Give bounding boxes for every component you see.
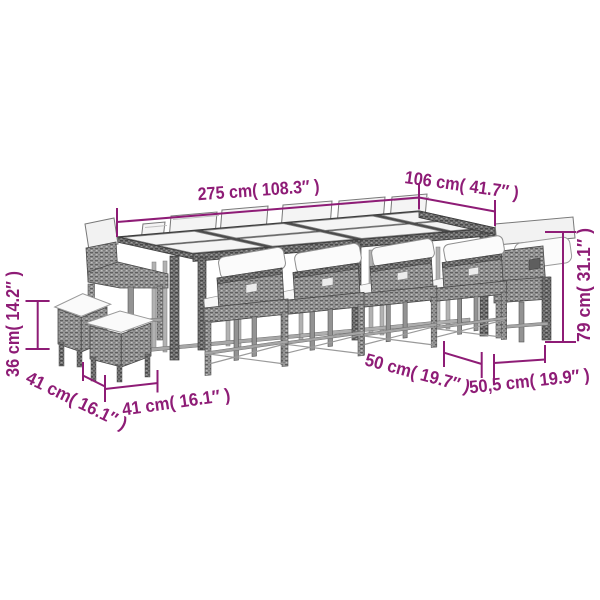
svg-text:36 cm( 14.2″ ): 36 cm( 14.2″ ) [3,271,23,377]
svg-text:79 cm( 31.1″ ): 79 cm( 31.1″ ) [574,228,594,342]
